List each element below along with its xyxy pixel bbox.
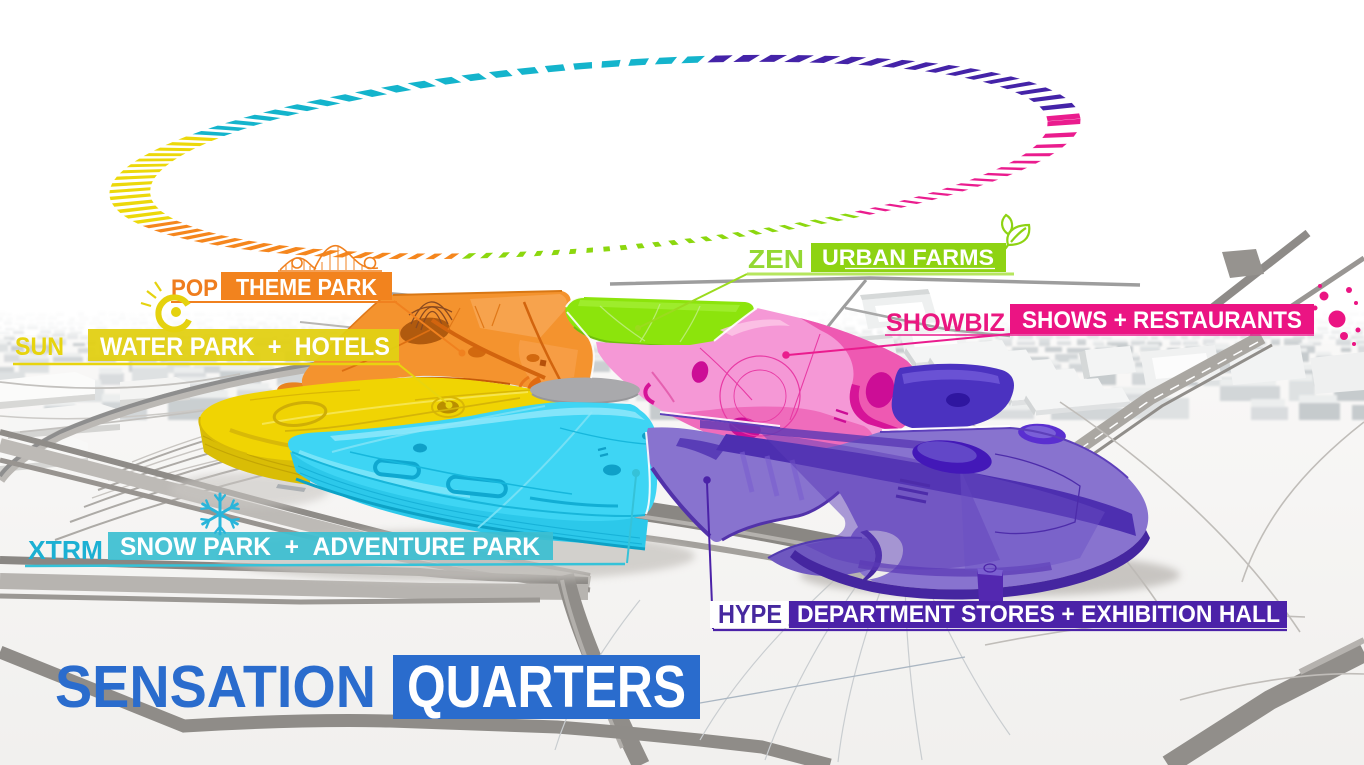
svg-text:DEPARTMENT STORES + EXHIBITION: DEPARTMENT STORES + EXHIBITION HALL — [797, 601, 1280, 628]
svg-text:SENSATION: SENSATION — [55, 654, 376, 720]
svg-text:HYPE: HYPE — [718, 599, 782, 629]
svg-text:WATER PARK + HOTELS: WATER PARK + HOTELS — [100, 333, 390, 361]
svg-text:XTRM: XTRM — [28, 535, 103, 565]
svg-text:SHOWBIZ: SHOWBIZ — [886, 309, 1005, 337]
svg-text:QUARTERS: QUARTERS — [407, 654, 686, 720]
svg-text:URBAN FARMS: URBAN FARMS — [822, 245, 994, 270]
svg-text:SNOW PARK + ADVENTURE PARK: SNOW PARK + ADVENTURE PARK — [120, 533, 540, 561]
svg-text:SHOWS + RESTAURANTS: SHOWS + RESTAURANTS — [1022, 307, 1302, 334]
svg-text:THEME PARK: THEME PARK — [236, 274, 377, 300]
svg-text:ZEN: ZEN — [748, 244, 804, 274]
svg-text:SUN: SUN — [15, 333, 64, 361]
